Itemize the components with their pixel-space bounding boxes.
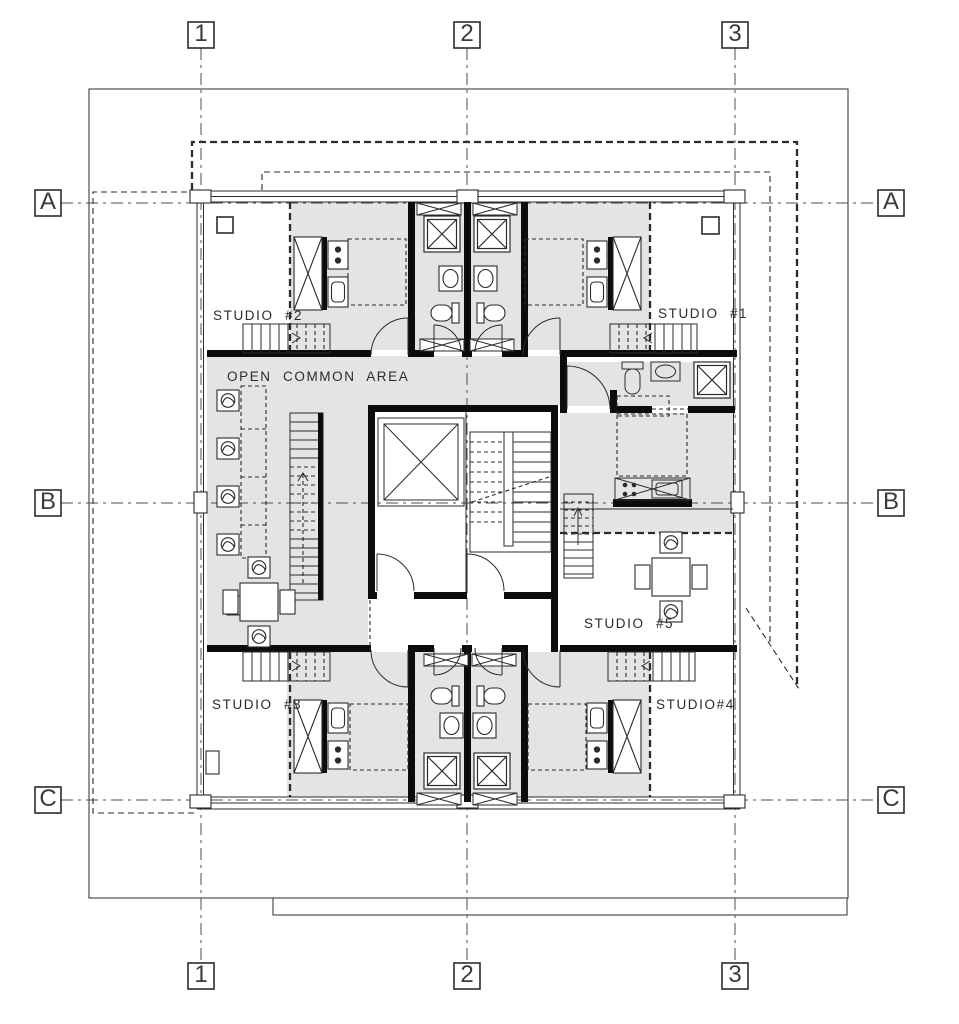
grid-label: C: [882, 785, 899, 812]
dining-table-studio5: [635, 532, 707, 622]
floor-plan-page: 1 2 3 1 2 3 A B: [0, 0, 959, 1024]
door-core-right: [467, 554, 504, 591]
room-label-studio5: STUDIO #5: [584, 616, 674, 631]
grid-marker-rowC-right: C: [878, 785, 904, 813]
elevator-shaft: [378, 418, 464, 506]
core-wall-left: [368, 405, 375, 599]
grid-label: 1: [194, 961, 207, 988]
grid-label: A: [883, 188, 899, 215]
grid-label: A: [40, 188, 56, 215]
grid-label: B: [40, 488, 56, 515]
studio1-lower-floor: [560, 413, 733, 533]
grid-marker-col2-top: 2: [454, 20, 480, 48]
door-core-left: [377, 554, 414, 591]
grid-marker-col2-bottom: 2: [454, 961, 480, 989]
interior-column: [702, 217, 719, 234]
grid-label: 2: [460, 20, 473, 47]
grid-label: 3: [728, 961, 741, 988]
grid-marker-rowA-right: A: [878, 188, 904, 216]
room-label-studio1: STUDIO #1: [658, 306, 748, 321]
window: [206, 751, 219, 774]
grid-label: B: [883, 488, 899, 515]
grid-marker-rowA-left: A: [35, 188, 61, 216]
grid-marker-rowB-right: B: [878, 488, 904, 516]
leader-line: [746, 608, 799, 689]
grid-label: 3: [728, 20, 741, 47]
grid-label: C: [39, 785, 56, 812]
grid-label: 1: [194, 20, 207, 47]
grid-marker-col1-bottom: 1: [188, 961, 214, 989]
grid-marker-col1-top: 1: [188, 20, 214, 48]
studio1-bath-wall: [560, 350, 567, 413]
grid-marker-col3-top: 3: [722, 20, 748, 48]
core-wall-top: [368, 405, 558, 412]
interior-column: [217, 217, 233, 233]
grid-marker-col3-bottom: 3: [722, 961, 748, 989]
grid-marker-rowC-left: C: [35, 785, 61, 813]
room-label-studio4: STUDIO#4: [656, 697, 735, 712]
room-label-studio3: STUDIO #3: [212, 697, 302, 712]
room-label-studio2: STUDIO #2: [213, 308, 303, 323]
grid-marker-rowB-left: B: [35, 488, 61, 516]
grid-label: 2: [460, 961, 473, 988]
floor-plan-drawing: 1 2 3 1 2 3 A B: [0, 0, 959, 1024]
core-wall-right: [551, 405, 558, 652]
main-stair: [470, 432, 551, 552]
room-label-common-area: OPEN COMMON AREA: [227, 369, 409, 384]
